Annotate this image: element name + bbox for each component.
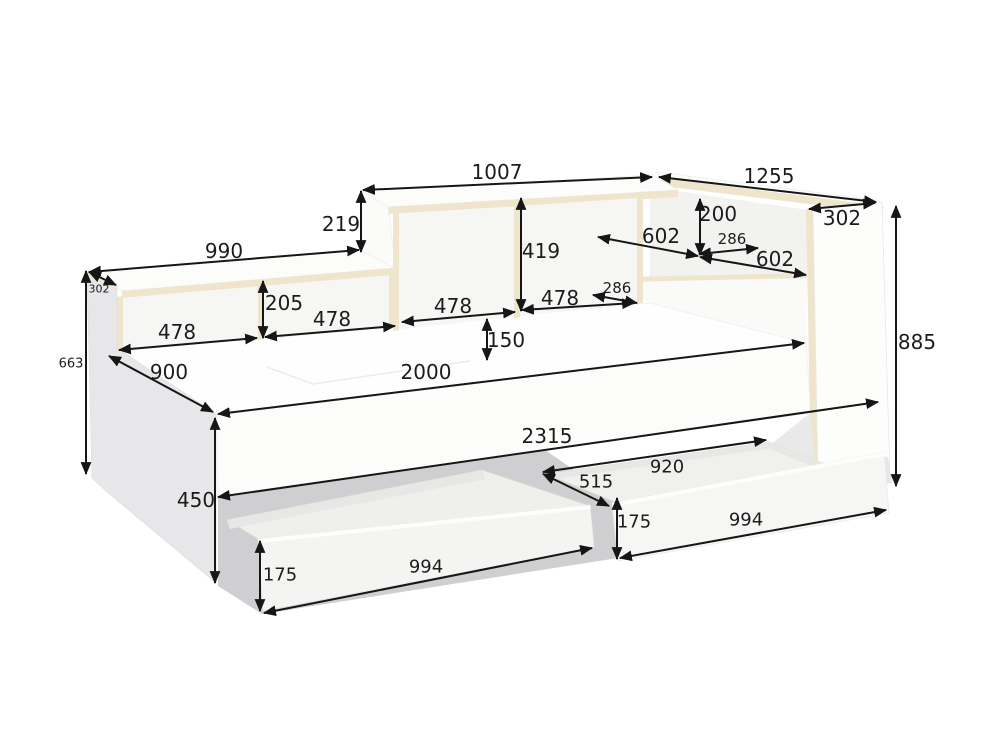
- dimension-label-bed-end-width: 900: [150, 360, 188, 384]
- head-unit-side-face: [813, 202, 890, 478]
- dimension-label-bed-length: 2000: [401, 360, 452, 384]
- dimension-label-shelf-tall-top-length: 1007: [472, 160, 523, 184]
- dimension-label-head-unit-length: 1255: [744, 164, 795, 188]
- low-shelf-left-wall-edge: [117, 296, 123, 353]
- dimension-label-compartment-width-3: 478: [434, 294, 472, 318]
- dimension-label-shelf-tall-inner-depth: 286: [603, 279, 632, 297]
- dimension-label-shelf-low-top-length: 990: [205, 239, 243, 263]
- dimension-label-compartment-width-2: 478: [313, 307, 351, 331]
- dimension-label-head-shelf-opening-right: 602: [756, 247, 794, 271]
- dimension-label-head-shelf-inner-height: 200: [699, 202, 737, 226]
- dimension-label-drawer-left-front-length: 994: [409, 557, 443, 578]
- head-unit-panel: [806, 202, 890, 478]
- dimension-label-head-unit-inner-depth: 286: [718, 230, 747, 248]
- dimension-label-side-panel-top-depth: 302: [89, 283, 110, 296]
- dimension-label-shelf-step-height: 219: [322, 212, 360, 236]
- dimension-label-drawer-inner-width: 515: [579, 472, 613, 493]
- tall-shelf-divider-edge: [514, 204, 520, 318]
- dimension-label-head-shelf-opening-left: 602: [642, 224, 680, 248]
- dimension-label-drawer-left-front-height: 175: [263, 565, 297, 586]
- low-shelf-right-wall-edge: [389, 274, 395, 328]
- dimension-label-shelf-low-inner-height: 205: [265, 291, 303, 315]
- dimension-label-mattress-recess-depth: 150: [487, 328, 525, 352]
- dimension-label-base-height: 450: [177, 488, 215, 512]
- dimension-label-drawer-right-front-length: 994: [729, 510, 763, 531]
- dimension-label-drawer-right-front-height: 175: [617, 512, 651, 533]
- tall-shelf-right-wall-edge: [637, 196, 643, 304]
- dimension-label-drawer-inner-length: 920: [650, 457, 684, 478]
- dimension-label-total-length: 2315: [522, 424, 573, 448]
- dimension-label-compartment-width-1: 478: [158, 320, 196, 344]
- dimension-diagram: 9901007125530230221920541920060228660228…: [0, 0, 988, 741]
- dimension-label-compartment-width-4: 478: [541, 286, 579, 310]
- dimension-label-shelf-tall-inner-height: 419: [522, 239, 560, 263]
- dimension-label-side-panel-height: 663: [59, 357, 84, 372]
- dimension-label-head-unit-top-depth: 302: [823, 206, 861, 230]
- bed-diagram-svg: 9901007125530230221920541920060228660228…: [0, 0, 988, 741]
- dimension-label-head-unit-height: 885: [898, 330, 936, 354]
